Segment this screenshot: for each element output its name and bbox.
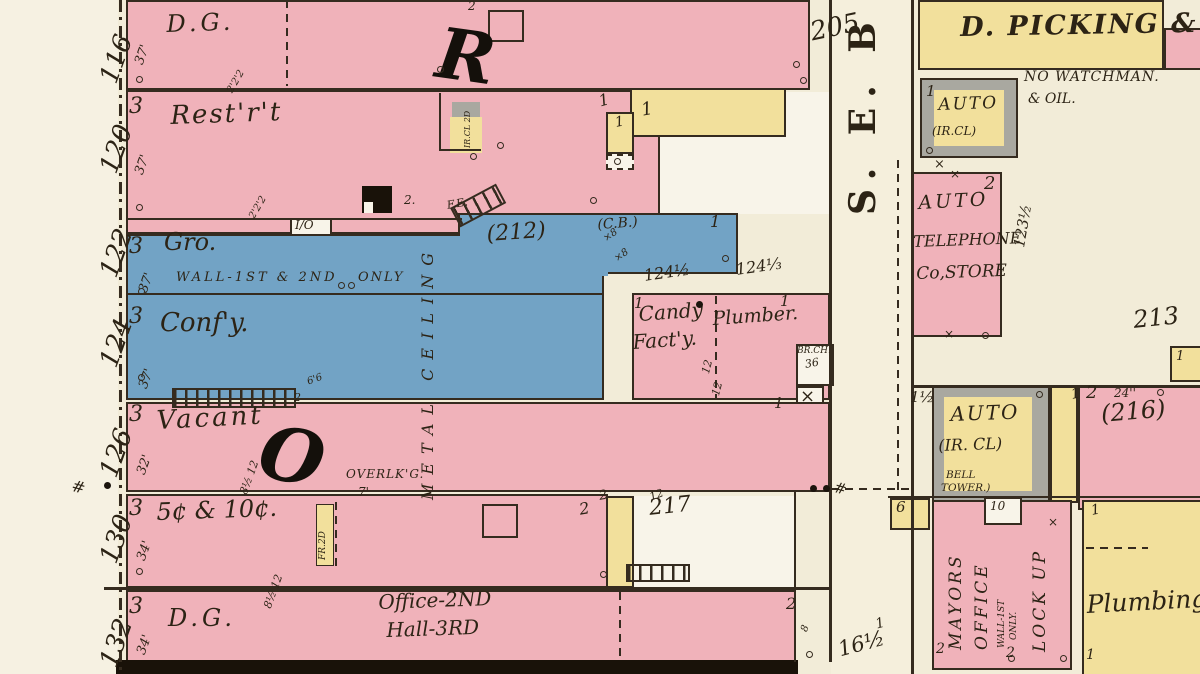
left-margin (0, 0, 118, 674)
dash-line-620 (619, 592, 621, 660)
label-office-2nd: Office-2ND (378, 588, 492, 612)
mark-2-blacksq: 2. (404, 194, 415, 206)
mark-2-top: 2 (468, 0, 476, 12)
mark-x-box: × (800, 388, 815, 406)
circle-mark (600, 571, 607, 578)
street-name-seb: S. E. B (845, 12, 881, 215)
circle-mark (806, 651, 813, 658)
story-1-corner: 1 (774, 396, 784, 411)
label-candy: Candy (638, 300, 703, 324)
label-ircl-2d: IR.CL 2D (464, 111, 472, 148)
story-3-confy: 3 (129, 306, 143, 328)
label-ircl-bell: (IR. CL) (938, 436, 1002, 454)
mark-x-gray: × (934, 158, 945, 171)
addr-213: 213 (1132, 303, 1180, 332)
circle-mark (437, 66, 444, 73)
wall-note-2: ONLY (358, 271, 404, 284)
circle-mark (338, 282, 345, 289)
dim-8-bottomrow: 8 (800, 624, 812, 633)
dot-mark (823, 485, 830, 492)
street-right-line (911, 0, 914, 674)
story-3-dgbottom: 3 (129, 596, 143, 618)
label-overlooking: OVERLK'G. (346, 468, 424, 480)
strip-216-yellow (1050, 385, 1078, 503)
mark-x-teltop: × (950, 168, 960, 180)
label-fr2d: FR.2D (319, 531, 328, 560)
addr-217: 217 (648, 494, 692, 520)
label-auto-tel3: Co,STORE (916, 263, 1007, 283)
circle-mark (1157, 389, 1164, 396)
label-plumbing: Plumbing (1086, 586, 1200, 617)
bottom-black-bar (116, 660, 798, 674)
mark-2-bottomrow: 2 (786, 596, 796, 612)
mark-6-mayors: 6 (896, 500, 906, 515)
circle-mark (497, 142, 504, 149)
label-metal-ceiling: METAL CEILING (420, 244, 436, 500)
circle-mark (1008, 655, 1015, 662)
story-1-autogray: 1 (926, 84, 936, 99)
addr-124half: 124½ (643, 262, 691, 284)
label-auto-gray: AUTO (938, 95, 998, 114)
circle-mark (136, 568, 143, 575)
label-mayors: MAYORS (948, 553, 965, 650)
label-tower: TOWER.) (941, 483, 990, 494)
story-1-plumb-bottom: 1 (1086, 648, 1095, 662)
label-wall-1st: WALL-1ST (998, 600, 1007, 648)
wall-note-1: WALL-1ST & 2ND (176, 271, 338, 284)
label-gro: Gro. (164, 230, 216, 254)
hatch-strip-217 (626, 564, 690, 582)
street-left-line (829, 0, 832, 662)
sanborn-fire-insurance-map: 116120122124126130132D.G.37'3Rest'r't37'… (0, 0, 1200, 674)
dash-line-dg-top (286, 0, 288, 86)
label-picking: D. PICKING & CO. (960, 9, 1200, 41)
circle-mark (138, 374, 145, 381)
big-letter-R: R (432, 18, 499, 95)
label-only: ONLY. (1010, 612, 1019, 640)
circle-mark (138, 288, 145, 295)
circle-mark (136, 204, 143, 211)
story-3-restaurant: 3 (129, 96, 143, 118)
circle-mark (590, 197, 597, 204)
black-square-notch (364, 202, 373, 213)
story-3-vacant: 3 (129, 404, 143, 426)
dim-12-candy-b: 12 (710, 380, 724, 396)
circle-mark (1060, 655, 1067, 662)
label-io: I/O (295, 219, 314, 231)
label-five-ten: 5¢ & 10¢. (156, 496, 277, 524)
story-3-gro: 3 (129, 236, 143, 258)
circle-mark (614, 158, 621, 165)
party-wall-line (126, 293, 604, 295)
label-dg-bottom: D.G. (168, 606, 236, 630)
label-facty: Fact'y. (632, 328, 697, 352)
label-212: (212) (486, 220, 547, 246)
circle-mark (982, 332, 989, 339)
circle-mark (800, 77, 807, 84)
circle-mark (1036, 391, 1043, 398)
label-bell: BELL (946, 470, 975, 481)
dot-mark (696, 301, 703, 308)
restaurant-bottom-line (126, 218, 462, 220)
notch-horizontal (439, 149, 481, 151)
addr-124third: 124⅓ (735, 256, 783, 278)
label-fe: F.E. (446, 196, 469, 210)
story-1-wing: 1 (710, 214, 720, 230)
skylight-outline-bottom (482, 504, 518, 538)
mark-x-mayors: × (1048, 516, 1058, 528)
yellow-1-box (1170, 346, 1200, 382)
label-restaurant: Rest'r't (170, 99, 283, 129)
story-1-plumber: 1 (780, 294, 790, 309)
mark-x-telbottom: × (944, 328, 954, 340)
label-auto-tel2: TELEPHONE (913, 230, 1022, 250)
label-ircl-gray: (IR.CL) (932, 125, 976, 137)
label-brch-36: 36 (804, 357, 820, 370)
circle-mark (470, 153, 477, 160)
dot-mark (104, 482, 111, 489)
story-3-fiveten: 3 (129, 498, 143, 520)
circle-mark (793, 61, 800, 68)
circle-mark (722, 255, 729, 262)
label-dg-top: D.G. (166, 10, 235, 36)
label-confy: Conf'y. (160, 310, 249, 336)
circle-mark (136, 76, 143, 83)
circle-mark (348, 282, 355, 289)
addr-216: (216) (1100, 396, 1166, 426)
label-cb: (C.B.) (597, 215, 638, 232)
dash-line-898 (897, 160, 899, 492)
story-1half-bell: 1½ (910, 390, 934, 405)
notch-vertical (439, 93, 441, 151)
mark-10-box: 10 (990, 500, 1005, 512)
label-brch: BR.CH. (797, 347, 831, 356)
plumbing-dash (1086, 547, 1148, 549)
label-hall-3rd: Hall-3RD (386, 617, 479, 640)
line-right-496 (888, 496, 1200, 498)
dim-123half: 123½ (1012, 203, 1034, 248)
line-right-386 (911, 385, 1200, 388)
label-office-v: OFFICE (974, 562, 991, 650)
dim-7: 7' (358, 486, 369, 498)
story-2-mayors-a: 2 (936, 642, 945, 656)
story-2-216: 2 (1086, 384, 1097, 402)
label-oil: & OIL. (1028, 92, 1076, 106)
label-no-watchman: NO WATCHMAN. (1024, 70, 1160, 84)
dot-mark (810, 485, 817, 492)
label-auto-bell: AUTO (950, 402, 1020, 424)
circle-mark (926, 147, 933, 154)
story-1-yellowbox: 1 (1176, 350, 1184, 363)
dash-line-fr2d (335, 502, 337, 566)
yard-right-edge (794, 492, 796, 662)
label-lockup: LOCK UP (1032, 549, 1049, 652)
mark-2-comb: 2 (294, 392, 301, 403)
label-auto-tel1: AUTO (918, 190, 989, 213)
label-vacant: Vacant (156, 402, 264, 434)
dim-12-candy-a: 12 (700, 358, 714, 374)
